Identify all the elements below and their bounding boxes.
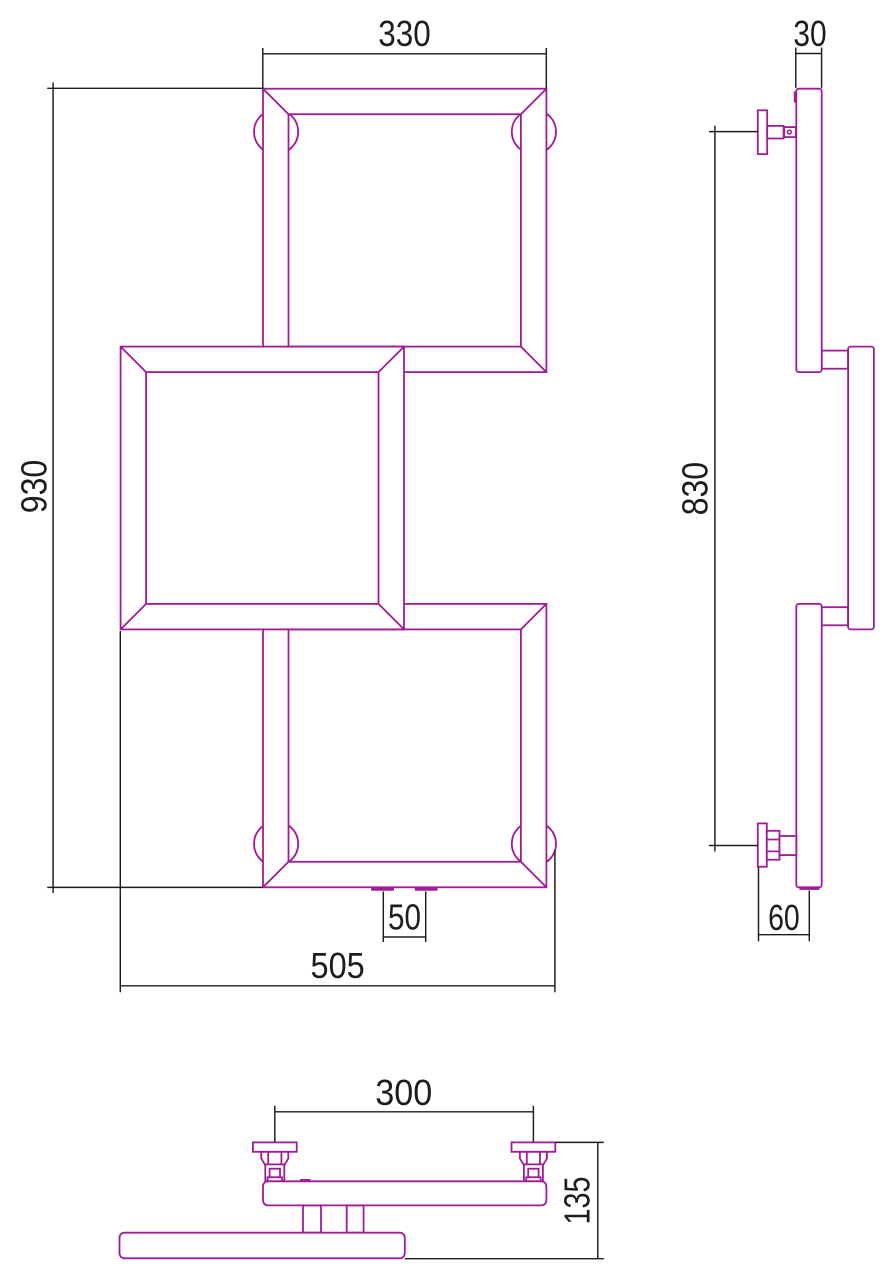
- svg-text:60: 60: [768, 897, 800, 938]
- svg-text:50: 50: [388, 897, 421, 938]
- svg-text:330: 330: [378, 13, 430, 54]
- svg-text:930: 930: [13, 460, 54, 514]
- svg-text:30: 30: [793, 13, 826, 54]
- svg-text:135: 135: [556, 1177, 597, 1225]
- svg-text:300: 300: [375, 1072, 432, 1113]
- svg-text:830: 830: [675, 462, 716, 515]
- svg-text:505: 505: [311, 945, 365, 986]
